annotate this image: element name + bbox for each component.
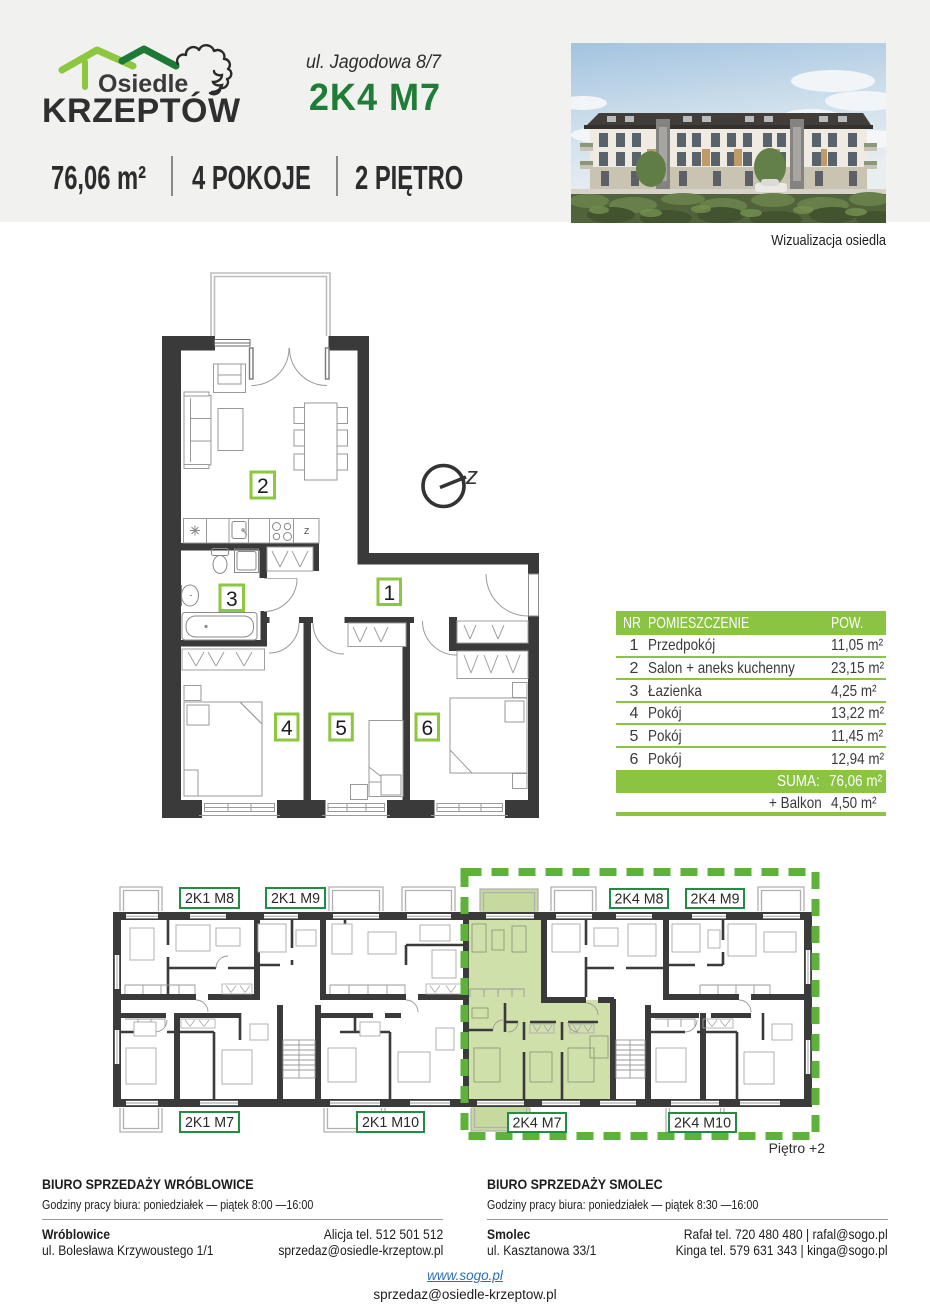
svg-text:5: 5 bbox=[335, 717, 347, 740]
svg-text:1: 1 bbox=[383, 582, 395, 605]
svg-text:4: 4 bbox=[281, 717, 293, 740]
svg-text:Z: Z bbox=[304, 526, 309, 536]
svg-text:2K1 M9: 2K1 M9 bbox=[271, 890, 320, 907]
svg-text:6: 6 bbox=[421, 717, 433, 740]
svg-text:z: z bbox=[465, 463, 478, 490]
svg-text:2K4 M9: 2K4 M9 bbox=[691, 891, 740, 908]
svg-text:2K4 M7: 2K4 M7 bbox=[513, 1115, 562, 1132]
svg-text:2K1 M7: 2K1 M7 bbox=[185, 1114, 234, 1131]
svg-text:2K4 M10: 2K4 M10 bbox=[674, 1115, 731, 1132]
svg-text:3: 3 bbox=[226, 588, 238, 611]
svg-text:2K1 M8: 2K1 M8 bbox=[185, 890, 234, 907]
svg-text:2K1 M10: 2K1 M10 bbox=[362, 1114, 419, 1131]
svg-text:KRZEPTÓW: KRZEPTÓW bbox=[42, 92, 241, 130]
svg-text:2K4 M8: 2K4 M8 bbox=[615, 891, 664, 908]
svg-text:2: 2 bbox=[257, 475, 269, 498]
